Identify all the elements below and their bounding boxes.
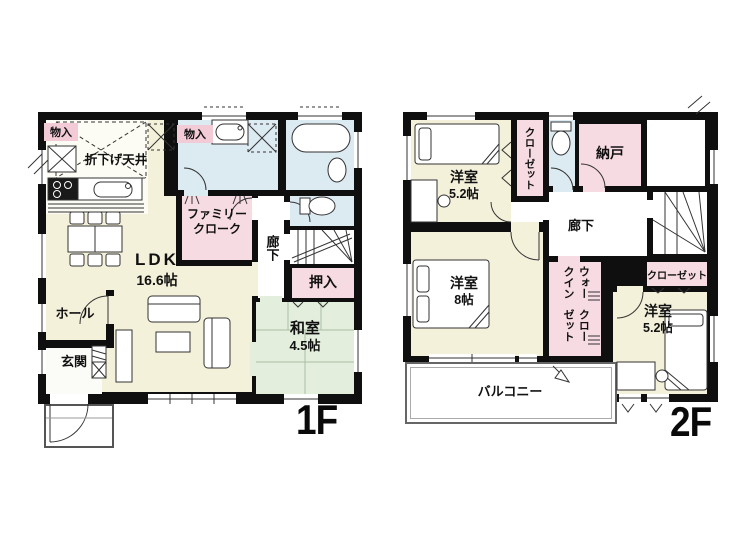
- f1-ldk-size: 16.6帖: [136, 271, 177, 289]
- f1-family-cloak-label: ファミリー クローク: [182, 202, 252, 242]
- f2-bedroom2-label: 洋室 8帖: [428, 270, 500, 312]
- f2-closet2-label: クローゼット: [647, 264, 707, 284]
- f1-floor-label: 1F: [296, 396, 337, 444]
- f2-wic-label: ウォークイン クローゼット: [549, 266, 601, 352]
- f2-toilet-fixture: [551, 122, 571, 155]
- f1-oshiire-label: 押入: [292, 272, 354, 292]
- f1-monoiri-left-label: 物入: [44, 123, 78, 141]
- f2-bedroom1-name: 洋室: [450, 168, 478, 186]
- f2-floor-label: 2F: [670, 398, 711, 446]
- f1-washitsu-label: 和室 4.5帖: [266, 316, 344, 358]
- f1-stairs: [292, 230, 352, 264]
- f1-ldk-name: LDK: [135, 249, 179, 271]
- f1-washitsu-size: 4.5帖: [289, 338, 320, 355]
- f2-nando-label: 納戸: [579, 142, 641, 164]
- f1-family-cloak-line1: ファミリー: [187, 207, 247, 222]
- f2-bedroom3-size: 5.2帖: [643, 320, 673, 336]
- f1-rouka-label: 廊下: [262, 220, 282, 276]
- f2-bedroom3-name: 洋室: [644, 302, 672, 320]
- f1-living-furniture: [116, 296, 230, 382]
- floorplan-canvas: 物入 物入 折下げ天井 ファミリー クローク 廊下 押入 LDK 16.6帖 和…: [0, 0, 740, 555]
- f2-bedroom3-label: 洋室 5.2帖: [622, 298, 694, 340]
- f2-bedroom1-label: 洋室 5.2帖: [428, 164, 500, 206]
- f2-stairs: [653, 192, 705, 254]
- f2-rouka-label: 廊下: [556, 214, 606, 234]
- f1-hall-label: ホール: [46, 302, 104, 322]
- f2-bedroom2-size: 8帖: [454, 292, 473, 308]
- f1-family-cloak-line2: クローク: [193, 222, 241, 237]
- f2-closet1-label: クローゼット: [517, 121, 543, 195]
- f1-sanitary-fixtures: [212, 120, 350, 215]
- f2-wic-line1: ウォークイン: [560, 266, 591, 309]
- f1-orisage-tenjo-label: 折下げ天井: [70, 150, 162, 166]
- f1-ldk-label: LDK 16.6帖: [110, 246, 204, 292]
- f2-bedroom1-size: 5.2帖: [449, 186, 479, 202]
- f2-bedroom2-name: 洋室: [450, 274, 478, 292]
- f1-monoiri-mid-label: 物入: [177, 125, 213, 143]
- f1-genkan-label: 玄関: [50, 351, 98, 369]
- f2-balcony-label: バルコニー: [452, 380, 568, 400]
- f1-washitsu-name: 和室: [290, 319, 320, 339]
- f2-wic-line2: クローゼット: [560, 309, 591, 352]
